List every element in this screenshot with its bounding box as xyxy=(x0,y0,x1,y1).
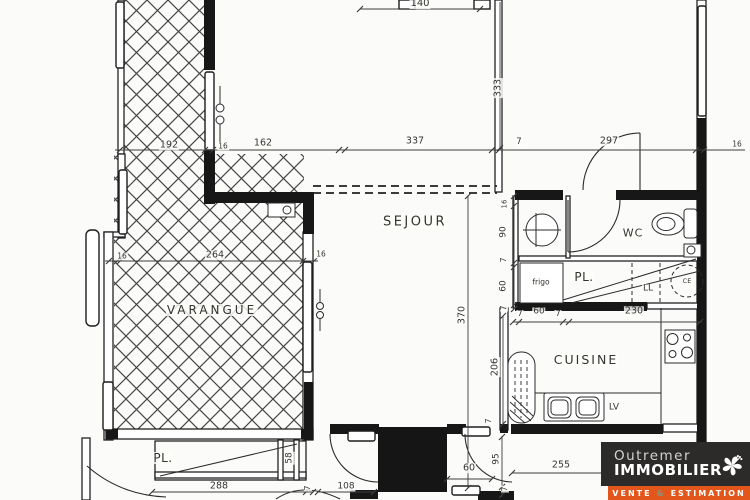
logo-wordmark: Outremer IMMOBILIER xyxy=(614,449,722,479)
floor-plan-drawing xyxy=(0,0,750,500)
fridge-box xyxy=(520,263,563,303)
water-heater-column-icon xyxy=(508,352,535,423)
sink-icon xyxy=(544,393,604,421)
logo-tagline-vente: VENTE xyxy=(612,489,651,498)
cooktop-icon xyxy=(665,330,695,363)
wall-box-icon xyxy=(268,203,295,217)
toilet-icon xyxy=(652,209,701,257)
washer-bay-dashes xyxy=(632,263,660,302)
corridor-dashed-line xyxy=(313,186,497,193)
agency-logo: Outremer IMMOBILIER VENTE & ESTIMATION xyxy=(601,442,750,500)
logo-tagline-estimation: ESTIMATION xyxy=(671,489,746,498)
closet-diagonal-lower xyxy=(160,444,297,476)
logo-tagline-ampersand: & xyxy=(657,489,666,498)
logo-banner: VENTE & ESTIMATION xyxy=(608,486,750,500)
technical-shaft xyxy=(378,427,447,492)
logo-brand-line2: IMMOBILIER xyxy=(614,463,722,479)
floor-plan-page: SEJOURVARANGUEWCCUISINEPL.PL.frigoLLCELV… xyxy=(0,0,750,500)
hibiscus-flower-icon xyxy=(722,446,744,482)
washbasin-icon xyxy=(523,213,561,247)
logo-panel: Outremer IMMOBILIER xyxy=(601,442,750,486)
